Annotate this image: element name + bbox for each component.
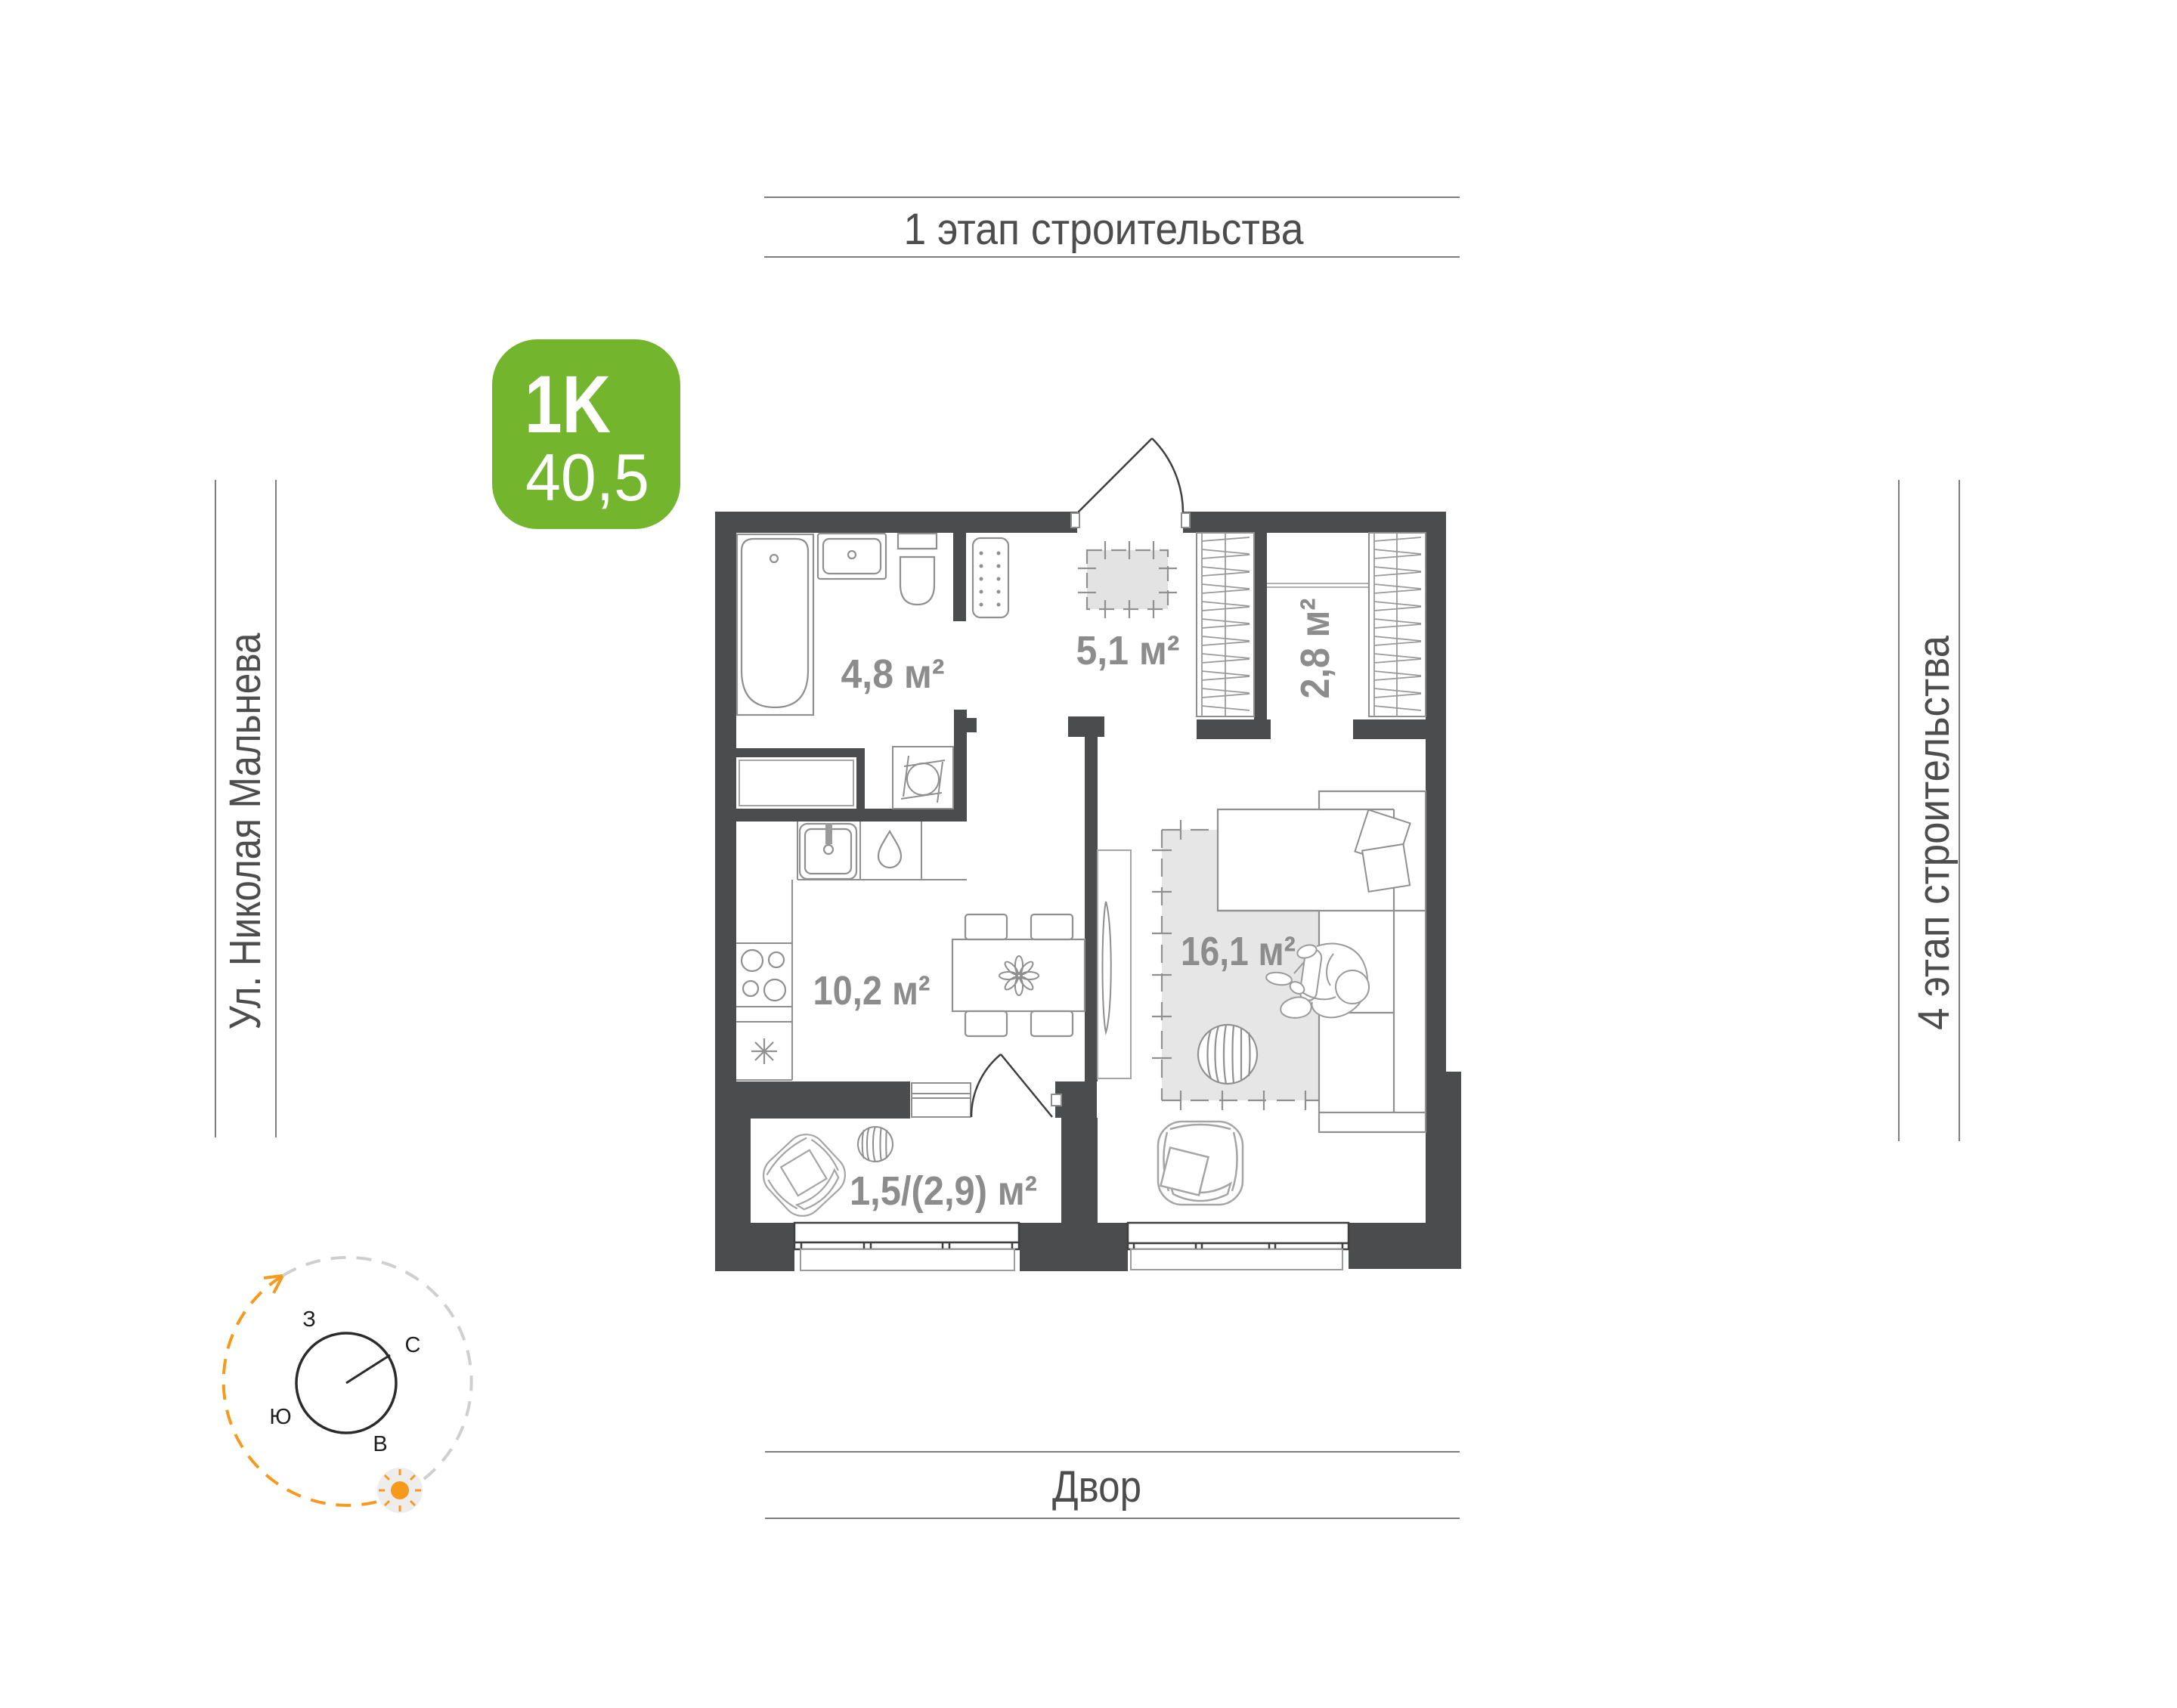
svg-text:С: С	[405, 1333, 421, 1357]
svg-text:4 этап строительства: 4 этап строительства	[1909, 635, 1959, 1030]
svg-text:16,1 м²: 16,1 м²	[1181, 929, 1296, 974]
svg-text:1K: 1K	[525, 358, 611, 450]
svg-text:Двор: Двор	[1052, 1462, 1141, 1512]
svg-text:В: В	[373, 1432, 387, 1456]
svg-text:З: З	[302, 1307, 316, 1332]
svg-text:1,5/(2,9) м²: 1,5/(2,9) м²	[850, 1168, 1037, 1214]
svg-text:5,1 м²: 5,1 м²	[1076, 628, 1180, 673]
svg-text:2,8 м²: 2,8 м²	[1293, 599, 1338, 699]
svg-text:4,8 м²: 4,8 м²	[841, 651, 945, 697]
svg-text:Ул. Николая Мальнева: Ул. Николая Мальнева	[221, 633, 270, 1030]
svg-text:40,5: 40,5	[525, 440, 649, 515]
svg-text:1 этап строительства: 1 этап строительства	[904, 205, 1305, 254]
svg-text:Ю: Ю	[269, 1405, 291, 1429]
svg-text:10,2 м²: 10,2 м²	[813, 968, 931, 1013]
